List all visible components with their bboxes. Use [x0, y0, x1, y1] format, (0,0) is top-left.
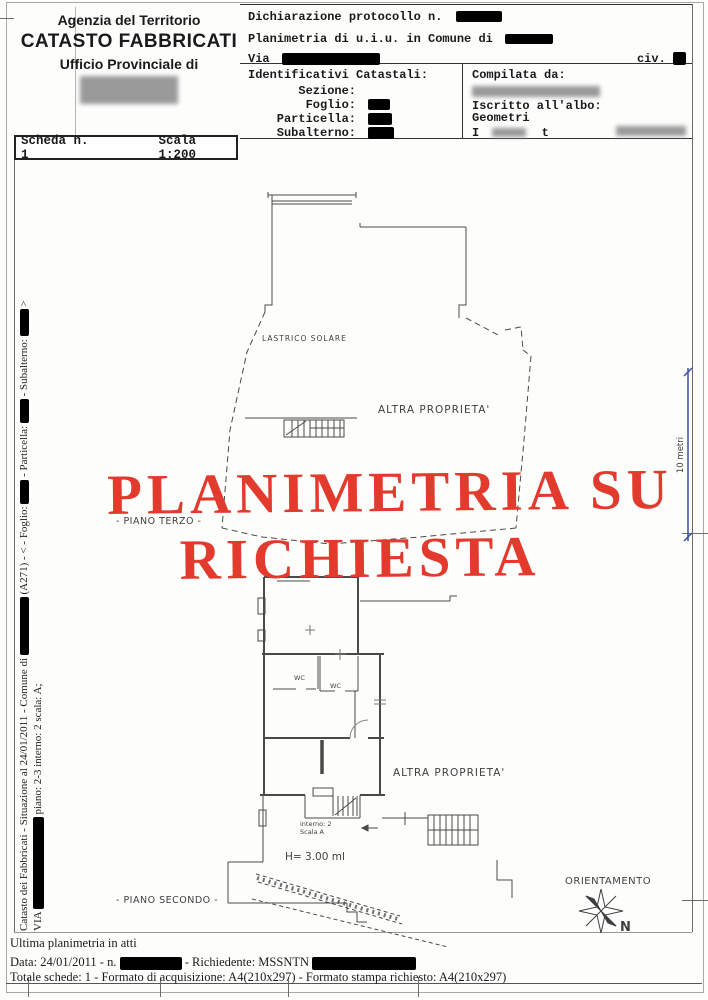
footer-number-redaction	[120, 957, 182, 970]
sidebar-line1-part2: (A271) - < - Foglio:	[18, 504, 30, 598]
footer-line2: Data: 24/01/2011 - n. - Richiedente: MSS…	[10, 955, 416, 970]
watermark-line1: PLANIMETRIA SU	[90, 461, 691, 524]
watermark-line2: RICHIESTA	[150, 528, 571, 589]
wc1-label: WC	[294, 674, 305, 682]
sidebar-comune-redaction	[20, 597, 29, 655]
height-label: H= 3.00 ml	[285, 851, 345, 863]
sidebar-line2-part1: VIA	[32, 909, 44, 931]
scala-a-label: Scala A	[300, 828, 325, 836]
orientamento-label: ORIENTAMENTO	[565, 876, 651, 887]
footer-richiedente-label: - Richiedente: MSSNTN	[185, 955, 309, 969]
sidebar-line1-part5: >	[18, 301, 30, 310]
sidebar-line1-part1: Catasto dei Fabbricati - Situazione al 2…	[18, 655, 30, 931]
wc2-label: WC	[330, 682, 341, 690]
sidebar-line2: VIA piano: 2-3 interno: 2 scala: A;	[31, 275, 45, 931]
footer-data-label: Data: 24/01/2011 - n.	[10, 955, 116, 969]
footer-line3: Totale schede: 1 - Formato di acquisizio…	[10, 970, 506, 985]
sidebar-line1: Catasto dei Fabbricati - Situazione al 2…	[17, 275, 31, 931]
scale-value: Scala 1:200	[159, 134, 237, 162]
lastrico-solare-label: LASTRICO SOLARE	[262, 334, 347, 343]
footer-line1: Ultima planimetria in atti	[10, 936, 137, 951]
piano-secondo-label: - PIANO SECONDO -	[116, 895, 218, 906]
sidebar-foglio-redaction	[20, 480, 29, 504]
sidebar-subalterno-redaction	[20, 309, 29, 336]
cadastral-document-page: Agenzia del Territorio CATASTO FABBRICAT…	[0, 0, 708, 1000]
sidebar-line1-part4: - Subalterno:	[18, 336, 30, 399]
scheda-box: Scheda n. 1 Scala 1:200	[14, 135, 238, 160]
sidebar-via-redaction	[33, 817, 44, 909]
scheda-number: Scheda n. 1	[21, 134, 99, 162]
sidebar-rotated-text: Catasto dei Fabbricati - Situazione al 2…	[17, 275, 45, 931]
sidebar-particella-redaction	[20, 399, 29, 423]
sidebar-line2-part2: piano: 2-3 interno: 2 scala: A;	[32, 683, 44, 817]
altra-proprieta-upper-label: ALTRA PROPRIETA'	[378, 404, 490, 416]
altra-proprieta-lower-label: ALTRA PROPRIETA'	[393, 767, 505, 779]
sidebar-line1-part3: - Particella:	[18, 423, 30, 480]
interno-label: interno: 2	[300, 820, 332, 828]
footer-richiedente-redaction	[312, 957, 416, 970]
compass-north-label: N	[620, 920, 631, 935]
